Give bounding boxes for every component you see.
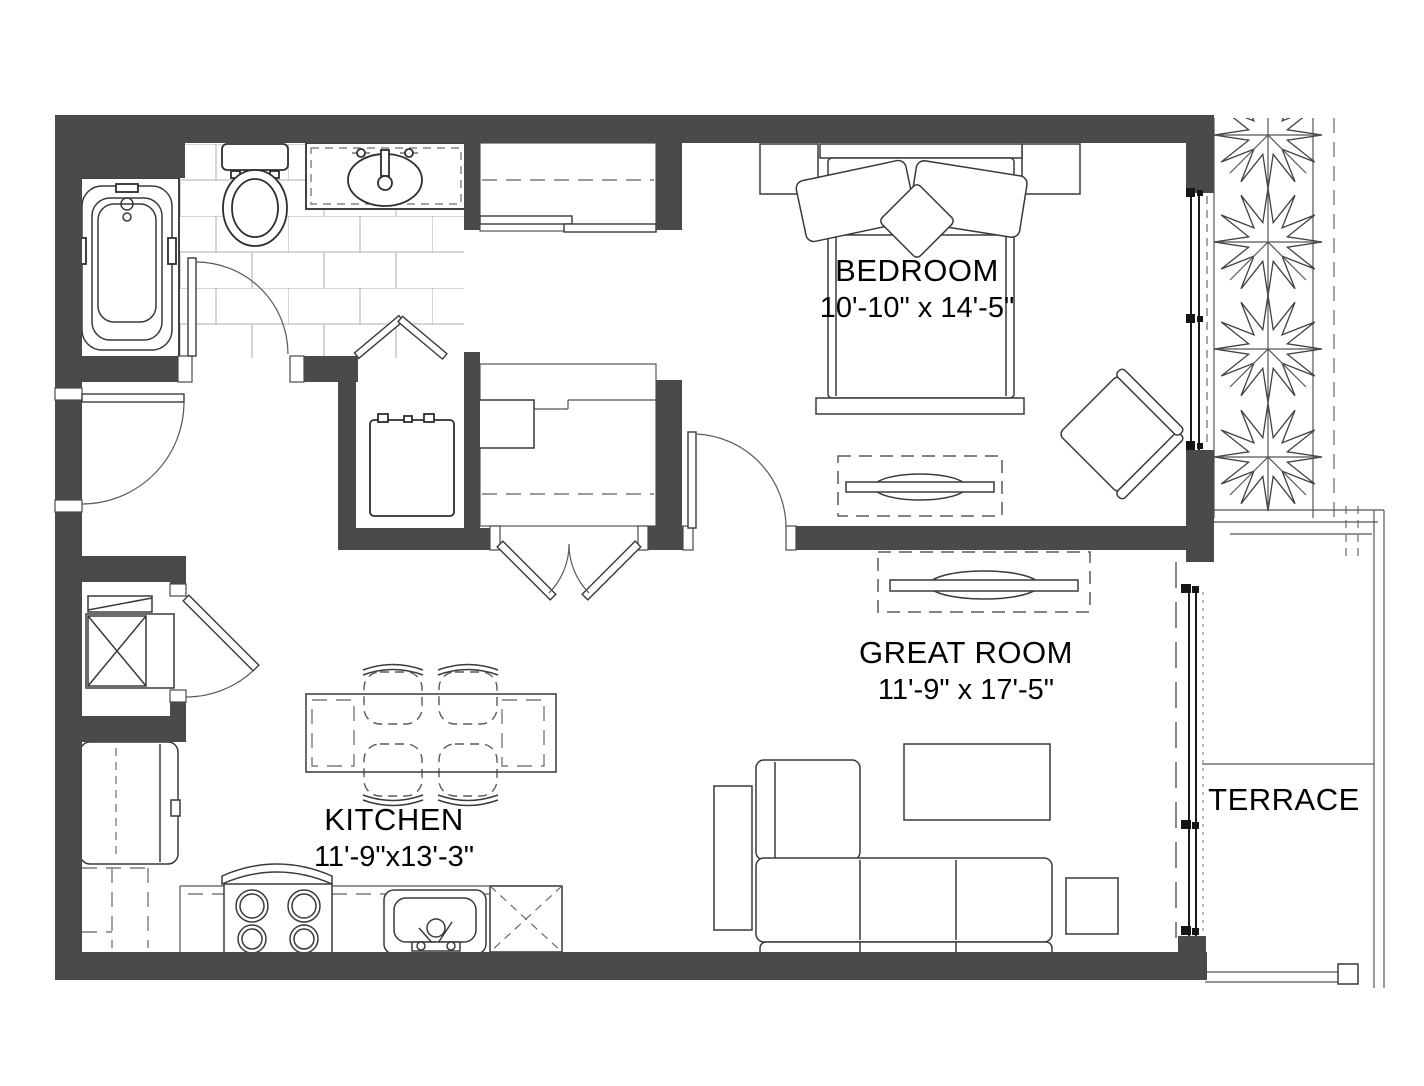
table-leaf <box>502 700 544 766</box>
great-room <box>714 552 1118 960</box>
wall-right-top <box>1186 115 1214 193</box>
planter <box>1214 81 1334 518</box>
floor-plan-page: BEDROOM 10'-10" x 14'-5" GREAT ROOM 11'-… <box>0 0 1424 1086</box>
toilet <box>222 144 288 246</box>
wall-right-mid <box>1186 450 1214 562</box>
kitchen <box>80 665 562 955</box>
terrace-sliding-door <box>1181 584 1199 936</box>
bedroom <box>760 144 1189 516</box>
bench-footboard <box>816 398 1024 414</box>
terrace <box>1176 506 1384 988</box>
bedroom-dims: 10'-10" x 14'-5" <box>820 292 1015 324</box>
range-stove <box>222 864 332 954</box>
side-table <box>1066 878 1118 934</box>
grab-bar-icon <box>168 238 176 264</box>
laundry-closet <box>86 595 259 697</box>
console-table <box>714 786 752 930</box>
washer-dryer <box>86 596 174 688</box>
tv-icon <box>846 482 994 492</box>
wall-top <box>55 115 1213 143</box>
bathtub <box>75 178 179 358</box>
wall-right-bottom <box>1178 936 1206 980</box>
terrace-railing <box>1205 964 1358 984</box>
coffee-table <box>904 744 1050 820</box>
dining-chair <box>363 665 498 806</box>
table-leaf <box>312 700 354 766</box>
great-room-label: GREAT ROOM <box>859 635 1073 670</box>
hall-wall-upper <box>656 142 682 230</box>
water-heater <box>370 414 454 516</box>
nightstand-right <box>1022 144 1080 194</box>
kitchen-sink <box>384 890 486 954</box>
bedroom-label: BEDROOM <box>835 253 999 288</box>
sliding-door-closet <box>480 143 656 232</box>
bedroom-armchair <box>1056 368 1189 501</box>
french-closet-doors <box>490 526 648 600</box>
refrigerator <box>80 742 180 864</box>
bedroom-window <box>1186 188 1207 450</box>
chaise <box>756 760 860 860</box>
tub-niche-wall <box>75 142 185 178</box>
dining-table <box>306 694 556 772</box>
planter-shrubs <box>1214 81 1322 511</box>
bathroom-south-wall <box>75 356 178 382</box>
bedroom-divider-wall <box>796 526 1186 550</box>
dining-set <box>306 665 556 806</box>
floor-plan-svg: BEDROOM 10'-10" x 14'-5" GREAT ROOM 11'-… <box>0 0 1424 1086</box>
media-console-tv <box>878 552 1090 612</box>
bedroom-door <box>683 432 796 550</box>
tv-icon <box>890 580 1078 591</box>
closet-post <box>464 142 480 230</box>
bedroom-dresser-tv <box>838 456 1002 516</box>
dishwasher <box>490 886 562 952</box>
wall-bottom <box>55 952 1207 980</box>
shelf-closet <box>478 364 656 526</box>
vanity-sink <box>306 143 466 209</box>
kitchen-dims: 11'-9"x13'-3" <box>314 841 474 873</box>
great-room-dims: 11'-9" x 17'-5" <box>878 674 1054 706</box>
utility-door <box>183 595 259 697</box>
wall-left <box>55 115 82 980</box>
hall-wall-lower <box>656 380 682 528</box>
kitchen-label: KITCHEN <box>324 802 464 837</box>
terrace-label: TERRACE <box>1208 782 1360 817</box>
